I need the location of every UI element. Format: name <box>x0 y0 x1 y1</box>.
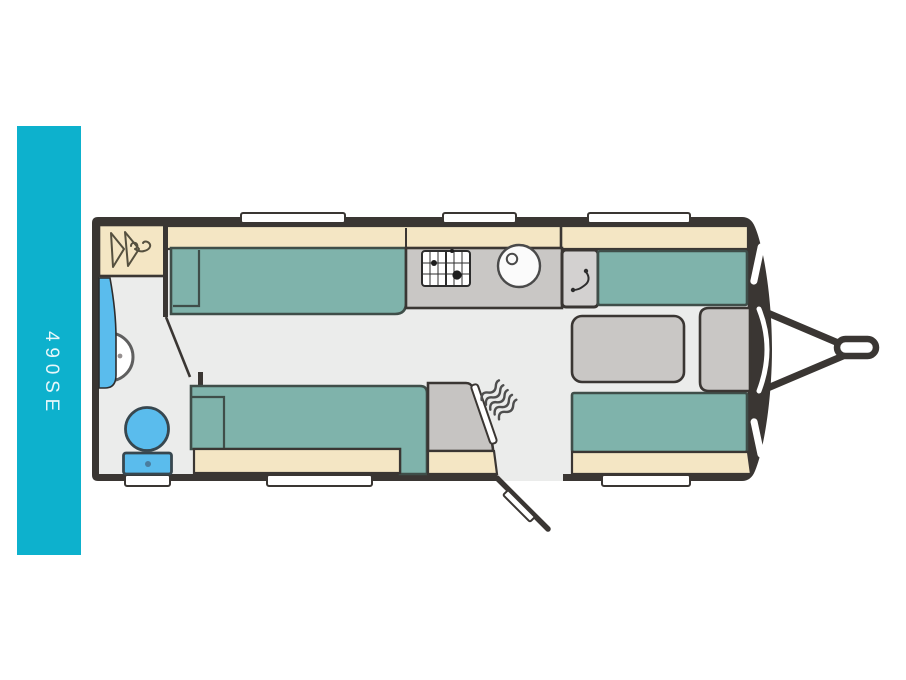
svg-text:490SE: 490SE <box>41 331 62 417</box>
